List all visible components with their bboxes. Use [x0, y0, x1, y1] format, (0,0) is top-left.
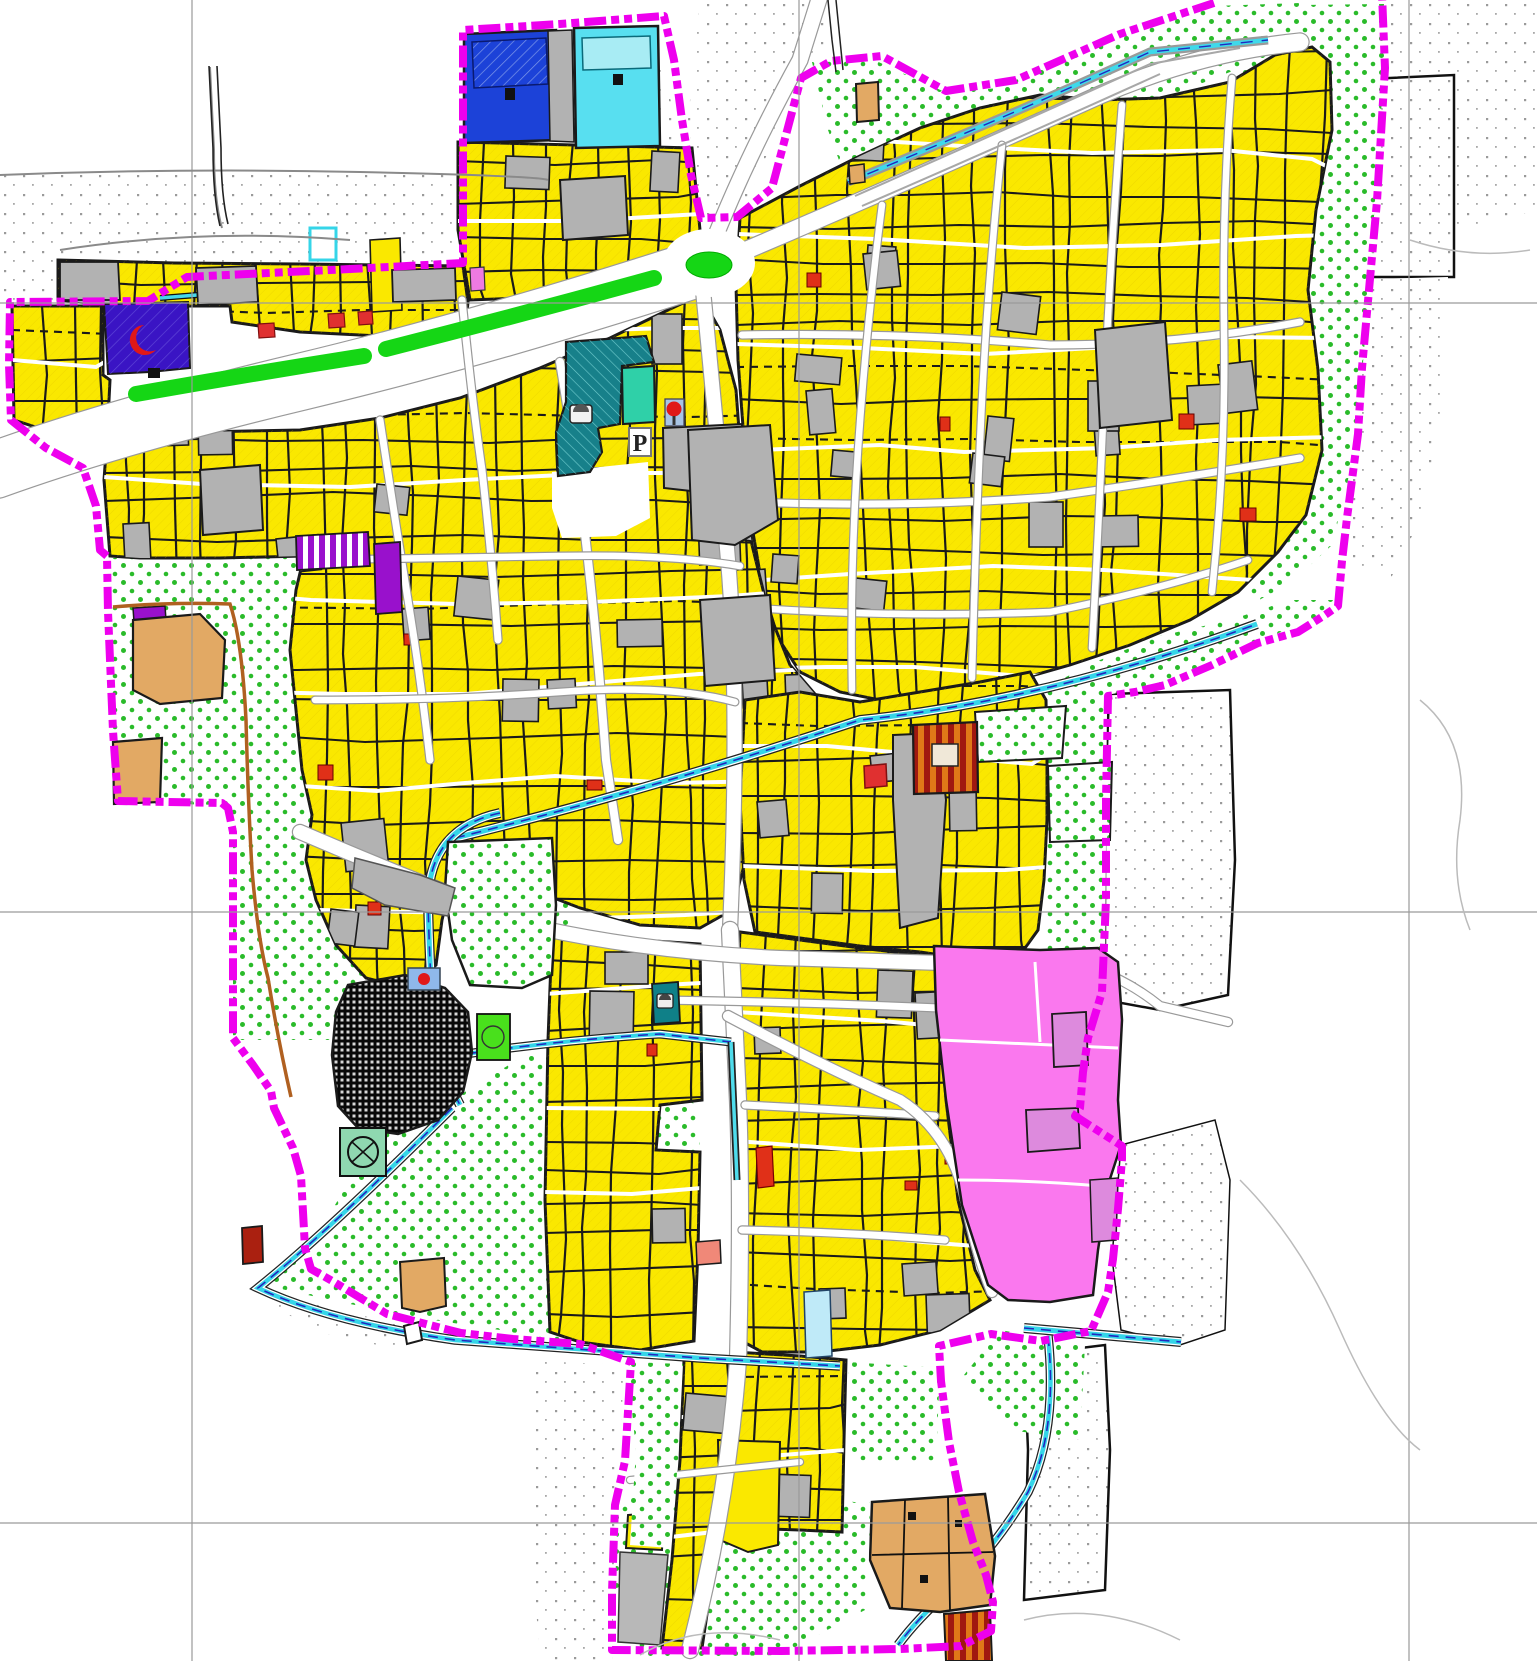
- svg-text:P: P: [633, 431, 648, 457]
